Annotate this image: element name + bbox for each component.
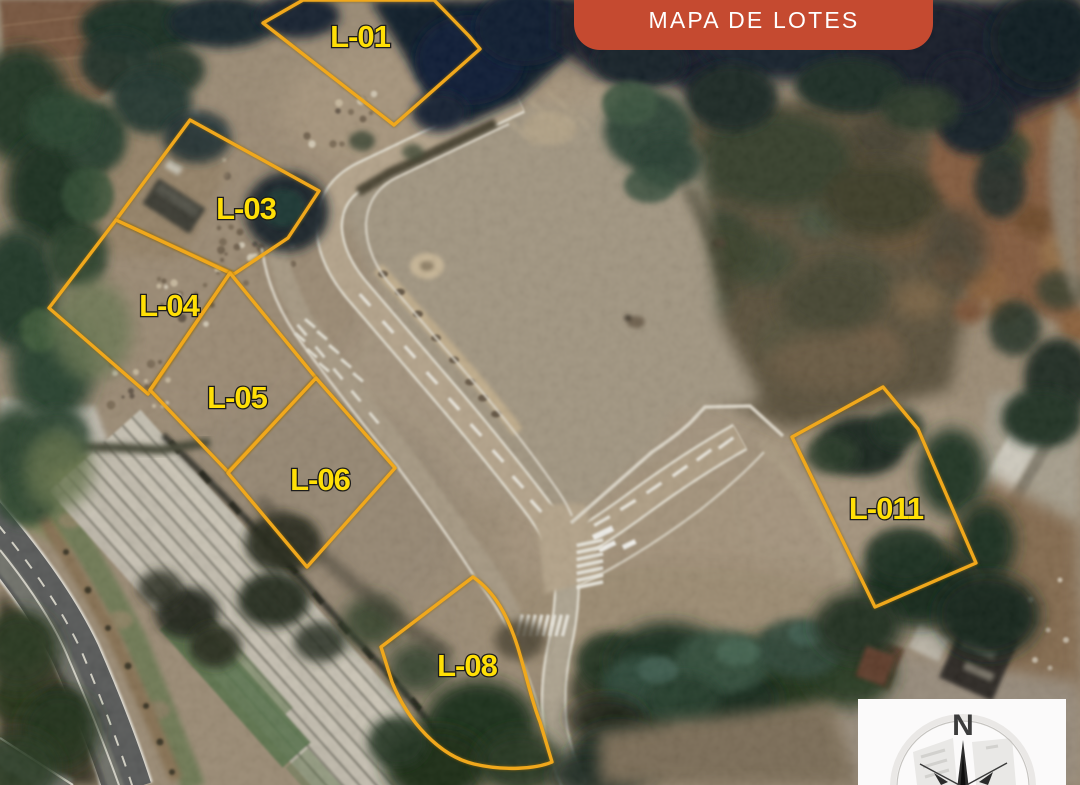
svg-text:L-08: L-08 [437, 648, 498, 683]
svg-text:L-04: L-04 [139, 288, 201, 323]
svg-text:MAPA DE LOTES: MAPA DE LOTES [649, 7, 860, 33]
svg-text:L-01: L-01 [330, 19, 391, 54]
svg-text:L-05: L-05 [207, 380, 268, 415]
svg-text:N: N [952, 709, 974, 742]
svg-text:L-03: L-03 [216, 191, 277, 226]
svg-text:L-06: L-06 [290, 462, 351, 497]
svg-text:L-011: L-011 [849, 491, 924, 526]
